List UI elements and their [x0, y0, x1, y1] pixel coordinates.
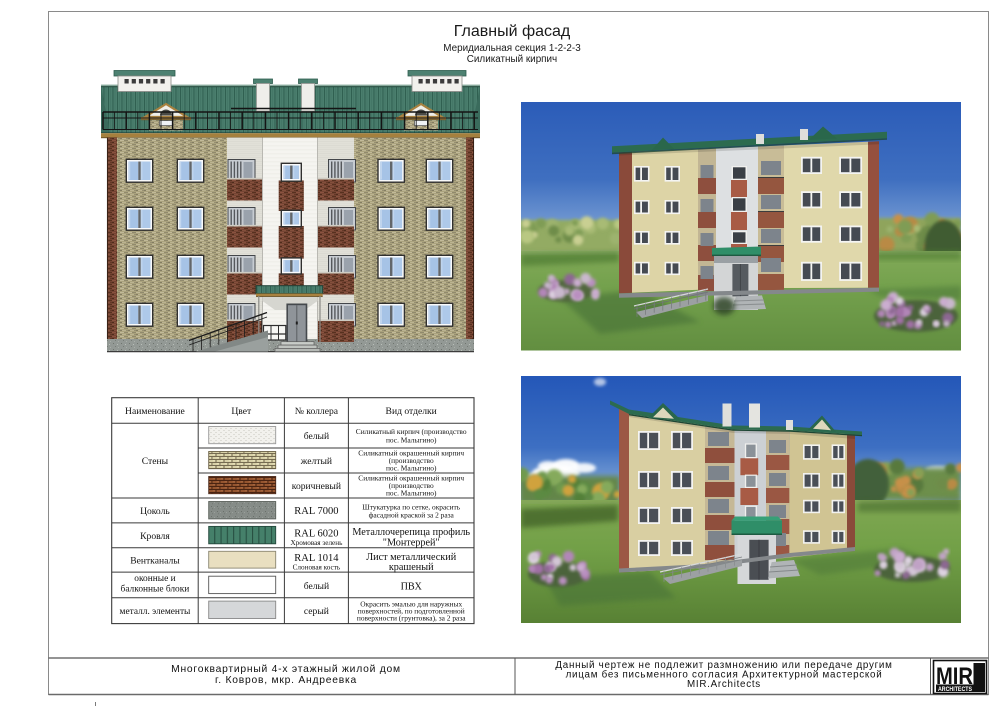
svg-text:поверхности (грунтовка), за 2: поверхности (грунтовка), за 2 раза: [357, 614, 466, 623]
svg-text:RAL 6020: RAL 6020: [294, 529, 338, 540]
svg-text:желтый: желтый: [300, 456, 332, 467]
svg-text:Главный фасад: Главный фасад: [454, 23, 571, 40]
svg-text:пос. Малыгино): пос. Малыгино): [386, 489, 437, 498]
svg-text:RAL 1014: RAL 1014: [294, 553, 339, 564]
svg-text:Слоновая кость: Слоновая кость: [293, 564, 341, 572]
svg-text:крашеный: крашеный: [389, 562, 434, 573]
svg-text:коричневый: коричневый: [292, 481, 341, 492]
svg-text:Хромовая зелень: Хромовая зелень: [290, 539, 343, 547]
svg-text:Стены: Стены: [142, 456, 169, 467]
svg-text:Вентканалы: Вентканалы: [130, 556, 180, 567]
svg-text:RAL 7000: RAL 7000: [294, 506, 338, 517]
svg-text:ARCHITECTS: ARCHITECTS: [938, 686, 972, 693]
svg-text:Кровля: Кровля: [140, 531, 170, 542]
svg-text:белый: белый: [304, 431, 329, 442]
svg-text:"Монтеррей": "Монтеррей": [383, 538, 440, 549]
svg-text:Меридиальная секция 1-2-2-3: Меридиальная секция 1-2-2-3: [443, 43, 581, 54]
svg-text:Вид отделки: Вид отделки: [386, 406, 437, 417]
svg-text:серый: серый: [304, 606, 329, 617]
svg-text:ПВХ: ПВХ: [401, 582, 423, 593]
svg-text:Многоквартирный 4-х этажный жи: Многоквартирный 4-х этажный жилой дом: [171, 664, 401, 675]
svg-text:Наименование: Наименование: [125, 406, 185, 417]
svg-text:Металлочерепица профиль: Металлочерепица профиль: [352, 527, 470, 538]
svg-text:г. Ковров, мкр. Андреевка: г. Ковров, мкр. Андреевка: [215, 675, 357, 686]
svg-text:Цвет: Цвет: [231, 406, 252, 417]
svg-text:фасадной краской за 2 раза: фасадной краской за 2 раза: [369, 511, 455, 520]
svg-text:белый: белый: [304, 581, 329, 592]
svg-text:Цоколь: Цоколь: [140, 506, 170, 517]
svg-text:балконные блоки: балконные блоки: [121, 584, 190, 595]
svg-text:пос. Малыгино): пос. Малыгино): [386, 464, 437, 473]
svg-text:№ коллера: № коллера: [295, 406, 339, 417]
svg-text:MIR.Architects: MIR.Architects: [687, 679, 761, 690]
svg-text:Силикатный кирпич: Силикатный кирпич: [467, 54, 557, 65]
svg-text:оконные и: оконные и: [134, 574, 175, 584]
svg-text:пос. Малыгино): пос. Малыгино): [386, 436, 437, 445]
svg-text:металл. элементы: металл. элементы: [120, 607, 191, 617]
